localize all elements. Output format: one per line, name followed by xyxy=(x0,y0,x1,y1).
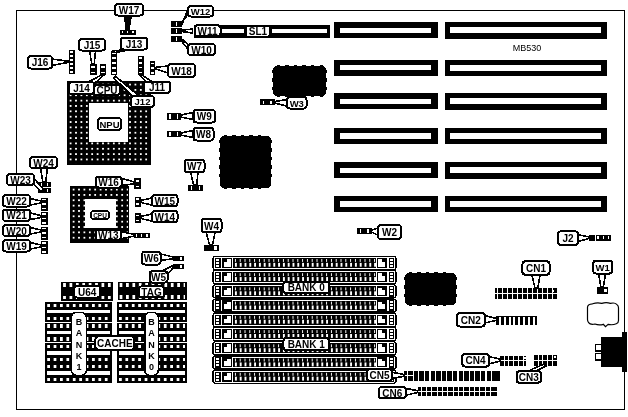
svg-text:K: K xyxy=(148,351,155,361)
svg-text:W19: W19 xyxy=(6,241,27,252)
svg-text:TAG: TAG xyxy=(141,287,162,298)
svg-text:W15: W15 xyxy=(154,196,175,207)
svg-text:W9: W9 xyxy=(197,111,212,122)
svg-text:W5: W5 xyxy=(151,272,166,283)
svg-text:0: 0 xyxy=(149,362,154,372)
svg-text:W8: W8 xyxy=(196,129,211,140)
svg-text:SL1: SL1 xyxy=(249,26,268,37)
svg-text:U64: U64 xyxy=(78,287,97,298)
svg-text:J13: J13 xyxy=(126,39,143,50)
svg-text:J11: J11 xyxy=(149,82,166,93)
svg-text:W14: W14 xyxy=(154,212,175,223)
svg-text:N: N xyxy=(76,340,83,350)
svg-text:W22: W22 xyxy=(6,196,27,207)
svg-text:J12: J12 xyxy=(135,96,151,107)
svg-text:CN6: CN6 xyxy=(382,388,402,399)
svg-text:J14: J14 xyxy=(73,83,90,94)
svg-text:CPU: CPU xyxy=(93,212,107,219)
svg-text:W16: W16 xyxy=(98,177,119,188)
svg-text:W1: W1 xyxy=(596,262,611,273)
svg-text:J15: J15 xyxy=(84,40,101,51)
svg-text:MB530: MB530 xyxy=(513,43,542,53)
svg-text:W18: W18 xyxy=(171,66,192,77)
svg-text:W4: W4 xyxy=(204,221,219,232)
svg-text:W13: W13 xyxy=(98,230,119,241)
svg-text:W3: W3 xyxy=(290,98,304,109)
svg-text:CN3: CN3 xyxy=(519,372,539,383)
svg-text:W23: W23 xyxy=(10,175,31,186)
svg-text:W6: W6 xyxy=(144,253,159,264)
svg-text:W20: W20 xyxy=(6,226,27,237)
svg-text:W11: W11 xyxy=(197,26,217,37)
svg-text:CN1: CN1 xyxy=(526,263,546,274)
svg-text:W12: W12 xyxy=(191,6,211,17)
svg-text:CN4: CN4 xyxy=(466,355,486,366)
svg-text:1: 1 xyxy=(76,362,81,372)
svg-text:A: A xyxy=(148,328,155,338)
svg-text:B: B xyxy=(148,317,155,327)
svg-text:W2: W2 xyxy=(382,227,397,238)
svg-text:NPU: NPU xyxy=(99,119,119,130)
svg-text:CPU: CPU xyxy=(96,85,117,96)
svg-text:CN2: CN2 xyxy=(461,315,481,326)
svg-text:W21: W21 xyxy=(6,210,27,221)
svg-text:W17: W17 xyxy=(119,5,140,16)
svg-text:A: A xyxy=(76,328,83,338)
svg-text:K: K xyxy=(76,351,83,361)
svg-text:W10: W10 xyxy=(191,45,212,56)
svg-text:N: N xyxy=(148,340,155,350)
svg-text:BANK 0: BANK 0 xyxy=(288,282,326,293)
svg-text:BANK 1: BANK 1 xyxy=(288,339,326,350)
svg-text:CACHE: CACHE xyxy=(97,338,133,349)
svg-text:CN5: CN5 xyxy=(369,370,389,381)
svg-text:J16: J16 xyxy=(32,57,49,68)
svg-text:B: B xyxy=(76,317,83,327)
svg-text:W7: W7 xyxy=(187,161,202,172)
svg-text:W24: W24 xyxy=(33,158,54,169)
svg-text:J2: J2 xyxy=(562,233,574,244)
